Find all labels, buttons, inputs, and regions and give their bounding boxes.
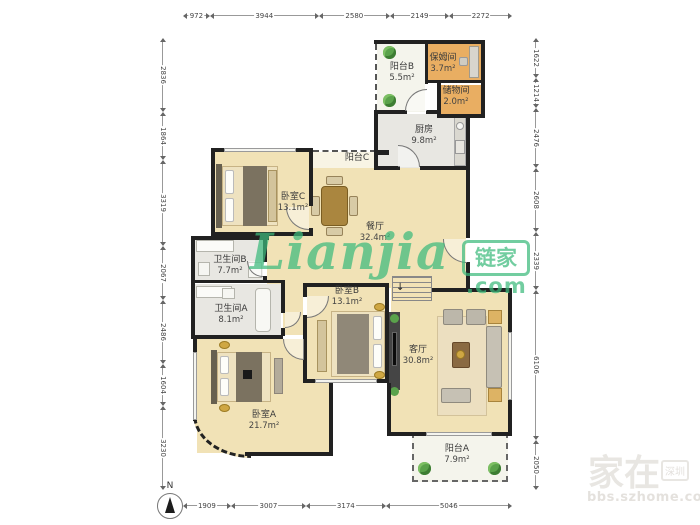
dim-value: 1864 [159,126,167,146]
window [508,332,512,400]
plant [390,387,399,396]
wall-segment [329,381,333,456]
dim-arrow-left-icon [306,503,310,509]
dining-table [321,186,348,226]
dim-value: 972 [189,12,204,20]
wardrobe [317,320,327,372]
wall-segment [309,228,313,236]
corner-watermark-tag: 深圳 [661,460,689,481]
dim-arrow-left-icon [319,13,323,19]
wall-segment [374,166,400,170]
wall-segment [191,236,269,240]
bench [274,358,283,394]
dim-value: 2272 [471,12,491,20]
dim-arrow-up-icon [533,290,539,294]
room-area: 5.5m² [389,73,414,84]
dim-arrow-down-icon [160,486,166,490]
balcony-b-window-line [375,44,377,110]
dining-chair [349,196,358,216]
room-area: 30.8m² [403,356,434,367]
dim-segment-top: 972 [183,10,210,21]
wall-segment [191,236,195,338]
wall-segment [374,110,378,170]
room-label-bedroom-b: 卧室B13.1m² [332,286,363,308]
room-label-bedroom-c: 卧室C13.1m² [278,192,309,214]
balcony-c-window-line [313,150,376,152]
room-name: 卧室C [281,192,305,202]
dim-value: 3319 [159,193,167,213]
dim-segment-right: 2050 [530,440,541,490]
room-name: 卧室B [335,286,359,296]
room-label-dining: 餐厅32.4m² [360,222,391,244]
wall-segment [377,110,407,114]
dim-arrow-up-icon [533,440,539,444]
dim-value: 3230 [159,438,167,458]
corner-watermark: 家在 深圳 bbs.szhome.com [585,444,700,524]
desk [469,46,479,78]
dim-segment-right: 6106 [530,290,541,440]
wall-segment [420,166,470,170]
wall-segment [425,42,428,84]
dim-segment-top: 2149 [390,10,449,21]
room-area: 8.1m² [214,315,247,326]
room-name: 客厅 [409,345,427,355]
bathtub [255,288,271,332]
dim-segment-left: 1604 [157,364,168,406]
dim-segment-right: 1622 [530,38,541,78]
room-area: 13.1m² [278,203,309,214]
dim-segment-left: 2836 [157,38,168,112]
wall-segment [211,148,215,236]
room-label-bath-b: 卫生间B7.7m² [213,255,246,277]
dim-value: 2476 [532,128,540,148]
dim-segment-left: 3319 [157,160,168,246]
wall-segment [191,280,285,283]
floor-plan: Lianjia 链家 .com 家在 深圳 bbs.szhome.com N 阳… [0,0,700,525]
dim-arrow-up-icon [533,168,539,172]
dim-segment-top: 2272 [449,10,512,21]
dim-segment-bottom: 5046 [386,500,512,511]
dim-value: 2050 [532,455,540,475]
stove [455,140,465,154]
dim-segment-bottom: 3007 [231,500,306,511]
dim-arrow-left-icon [231,503,235,509]
room-area: 9.8m² [411,136,436,147]
nightstand [374,303,385,311]
nightstand [219,404,230,412]
dim-arrow-up-icon [160,406,166,410]
nightstand [456,350,465,359]
dim-value: 3007 [259,502,279,510]
plant [383,46,396,59]
dim-arrow-up-icon [160,246,166,250]
room-name: 阳台C [345,153,369,163]
dim-arrow-left-icon [449,13,453,19]
room-area: 3.7m² [429,64,456,75]
corner-watermark-url: bbs.szhome.com [587,490,700,505]
window [224,148,296,152]
room-area: 7.9m² [444,455,469,466]
dim-arrow-up-icon [160,112,166,116]
compass-dial [157,493,183,519]
window [315,379,377,383]
dim-arrow-left-icon [210,13,214,19]
dim-arrow-up-icon [160,364,166,368]
dim-value: 3174 [336,502,356,510]
dim-arrow-up-icon [533,232,539,236]
room-area: 21.7m² [249,421,280,432]
wall-segment [376,150,389,155]
dim-value: 2836 [159,65,167,85]
sofa [486,326,502,388]
room-name: 卫生间B [213,255,246,265]
room-name: 厨房 [415,125,433,135]
dim-value: 2067 [159,263,167,283]
room-area: 7.7m² [213,266,246,277]
dim-segment-right: 2608 [530,168,541,232]
dim-segment-bottom: 1909 [183,500,231,511]
dim-arrow-right-icon [508,503,512,509]
dim-value: 2580 [344,12,364,20]
dim-segment-left: 2067 [157,246,168,300]
wall-segment [426,110,439,114]
room-name: 阳台B [390,62,414,72]
bath-fixture [222,288,235,299]
wall-segment [432,288,512,292]
wall-segment [466,168,470,238]
room-label-balcony-a: 阳台A7.9m² [444,444,469,466]
stairs-hatch [392,276,432,301]
pillow [373,316,382,340]
room-label-kitchen: 厨房9.8m² [411,125,436,147]
room-label-nanny-room: 保姆间3.7m² [429,53,456,75]
dim-arrow-up-icon [533,78,539,82]
decor [243,370,252,379]
room-area: 2.0m² [442,97,469,108]
room-name: 卧室A [252,410,276,420]
room-name: 阳台A [445,444,469,454]
dim-value: 5046 [439,502,459,510]
dim-value: 2486 [159,322,167,342]
dim-value: 2608 [532,190,540,210]
room-label-balcony-b: 阳台B5.5m² [389,62,414,84]
dim-segment-right: 2339 [530,232,541,289]
north-arrow-icon [165,497,175,513]
wall-segment [387,383,391,436]
wall-segment [263,236,267,262]
window [193,352,197,420]
room-label-storage: 储物间2.0m² [442,86,469,108]
dim-value: 1909 [197,502,217,510]
wall-segment [191,335,283,339]
dim-value: 1604 [159,375,167,395]
dim-segment-left: 1864 [157,112,168,160]
lianjia-brand-box: 链家 [462,240,530,276]
dim-arrow-down-icon [533,486,539,490]
wall-segment [481,40,485,118]
pillow [220,356,229,374]
room-name: 卫生间A [214,304,247,314]
pillow [220,378,229,396]
plant [488,462,501,475]
wall-segment [374,40,485,44]
wardrobe [268,170,277,222]
room-area: 32.4m² [360,233,391,244]
dim-segment-top: 3944 [210,10,319,21]
pillow [225,198,234,222]
dim-arrow-left-icon [386,503,390,509]
room-area: 13.1m² [332,297,363,308]
dim-value: 2339 [532,251,540,271]
bed-blanket [337,314,369,374]
nightstand [219,341,230,349]
pillow [373,344,382,368]
wall-segment [466,114,470,170]
dim-arrow-up-icon [533,38,539,42]
dim-arrow-up-icon [160,38,166,42]
tv [392,332,397,366]
chair [459,57,468,66]
window [426,432,492,436]
room-fill-bedroom-a2 [303,383,329,453]
room-label-living: 客厅30.8m² [403,345,434,367]
dim-value: 1214 [532,83,540,103]
wall-segment [309,148,313,206]
dim-arrow-left-icon [390,13,394,19]
wall-segment [281,283,285,313]
dim-segment-top: 2580 [319,10,390,21]
side-table [488,310,502,324]
room-label-bedroom-a: 卧室A21.7m² [249,410,280,432]
dim-arrow-up-icon [160,300,166,304]
dim-segment-right: 2476 [530,108,541,169]
dim-value: 3944 [254,12,274,20]
room-label-bath-a: 卫生间A8.1m² [214,304,247,326]
dim-segment-bottom: 3174 [306,500,385,511]
room-name: 储物间 [442,86,469,96]
bed-blanket [243,166,267,226]
wall-segment [466,262,470,292]
dim-segment-right: 1214 [530,78,541,108]
nightstand [374,371,385,379]
bath-counter [196,240,234,252]
dim-arrow-up-icon [160,160,166,164]
plant [383,94,396,107]
dim-value: 1622 [532,48,540,68]
room-name: 保姆间 [429,53,456,63]
sink [456,122,464,130]
dim-arrow-left-icon [183,503,187,509]
sofa-cushion [443,309,463,325]
room-name: 餐厅 [366,222,384,232]
dim-value: 6106 [532,355,540,375]
plant [390,314,399,323]
dim-arrow-left-icon [183,13,187,19]
dim-value: 2149 [410,12,430,20]
sofa [441,388,471,403]
bath-fixture [198,262,210,276]
wall-segment [385,283,389,383]
pillow [225,170,234,194]
side-table [488,388,502,402]
dim-arrow-up-icon [533,108,539,112]
dining-chair [326,176,343,185]
dim-arrow-right-icon [508,13,512,19]
dim-segment-left: 3230 [157,406,168,490]
sofa-cushion [466,309,486,325]
wall-segment [437,114,484,118]
corner-watermark-text: 家在 [588,444,660,496]
dining-chair [326,227,343,236]
room-label-balcony-c: 阳台C [345,153,369,164]
dim-segment-left: 2486 [157,300,168,365]
wall-segment [245,452,333,456]
plant [418,462,431,475]
